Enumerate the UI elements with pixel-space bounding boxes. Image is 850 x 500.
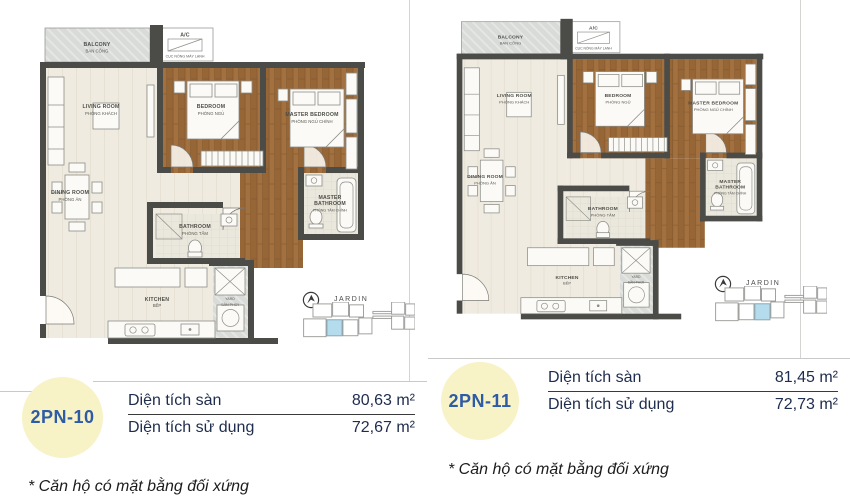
master-bathroom-label: MASTER <box>719 179 741 185</box>
spec-value: 81,45 m² <box>775 369 838 387</box>
master-bedroom-label: MASTER BEDROOM <box>688 101 738 107</box>
spec-row: Diện tích sử dụng 72,73 m² <box>548 393 838 417</box>
spec-table-2pn-10: Diện tích sàn 80,63 m² Diện tích sử dụng… <box>128 389 415 440</box>
svg-text:BẾP: BẾP <box>563 280 571 285</box>
svg-text:PHÒNG NGỦ CHÍNH: PHÒNG NGỦ CHÍNH <box>291 119 332 124</box>
keyplan-2pn-11: JARDIN <box>708 272 833 334</box>
corridor-floor <box>645 158 704 247</box>
svg-text:PHÒNG TẮM: PHÒNG TẮM <box>182 231 208 236</box>
keyplan-2pn-10: JARDIN <box>296 288 421 350</box>
svg-text:CỤC NÓNG MÁY LẠNH: CỤC NÓNG MÁY LẠNH <box>575 45 612 50</box>
svg-text:PHÒNG ĂN: PHÒNG ĂN <box>59 197 82 202</box>
bathroom-label: BATHROOM <box>588 206 618 212</box>
spec-row: Diện tích sàn 81,45 m² <box>548 366 838 390</box>
divider-horizontal-left <box>93 381 427 382</box>
spec-row: Diện tích sử dụng 72,67 m² <box>128 416 415 440</box>
master-bedroom-label: MASTER BEDROOM <box>285 112 338 118</box>
unit-highlight <box>327 320 342 336</box>
spec-label: Diện tích sử dụng <box>128 419 254 437</box>
dining-room-label: DINING ROOM <box>51 190 89 196</box>
svg-text:PHÒNG TẮM: PHÒNG TẮM <box>591 213 616 218</box>
bedroom-label: BEDROOM <box>197 104 226 110</box>
svg-text:PHÒNG ĂN: PHÒNG ĂN <box>474 181 496 186</box>
dining-room-label: DINING ROOM <box>467 174 503 180</box>
spec-label: Diện tích sử dụng <box>548 396 674 414</box>
svg-text:BATHROOM: BATHROOM <box>314 201 346 207</box>
spec-divider <box>128 414 415 415</box>
spec-label: Diện tích sàn <box>128 392 221 410</box>
spec-value: 72,73 m² <box>775 396 838 414</box>
bathroom-label: BATHROOM <box>179 224 211 230</box>
svg-text:PHÒNG NGỦ CHÍNH: PHÒNG NGỦ CHÍNH <box>694 107 733 112</box>
spec-value: 80,63 m² <box>352 392 415 410</box>
spec-divider <box>548 391 838 392</box>
unit-code: 2PN-11 <box>448 391 511 412</box>
footnote-2pn-10: * Căn hộ có mặt bằng đối xứng <box>28 478 249 496</box>
svg-text:PHÒNG TẮM CHÍNH: PHÒNG TẮM CHÍNH <box>714 191 747 196</box>
svg-text:PHÒNG NGỦ: PHÒNG NGỦ <box>606 100 631 105</box>
svg-text:BAN CÔNG: BAN CÔNG <box>86 49 110 54</box>
yard-label: YARD <box>631 275 641 279</box>
spec-row: Diện tích sàn 80,63 m² <box>128 389 415 413</box>
bedroom-label: BEDROOM <box>605 93 632 99</box>
divider-horizontal-right <box>428 358 850 359</box>
building-keyplan <box>710 286 827 331</box>
svg-text:PHÒNG TẮM CHÍNH: PHÒNG TẮM CHÍNH <box>313 208 347 213</box>
building-keyplan <box>298 302 415 347</box>
svg-text:SÂN PHƠI: SÂN PHƠI <box>221 303 238 307</box>
unit-badge-2pn-10: 2PN-10 <box>22 377 103 458</box>
footnote-2pn-11: * Căn hộ có mặt bằng đối xứng <box>448 461 669 479</box>
brochure-page: BALCONY BAN CÔNG A/C CỤC NÓNG MÁY LẠNH L… <box>0 0 850 500</box>
living-room-label: LIVING ROOM <box>82 104 119 110</box>
unit-highlight <box>755 304 770 320</box>
svg-text:PHÒNG NGỦ: PHÒNG NGỦ <box>198 111 225 116</box>
svg-text:BATHROOM: BATHROOM <box>715 184 745 190</box>
corridor-floor <box>240 173 303 268</box>
svg-text:PHÒNG KHÁCH: PHÒNG KHÁCH <box>499 100 529 105</box>
svg-text:SÂN PHƠI: SÂN PHƠI <box>628 280 644 285</box>
living-room-label: LIVING ROOM <box>497 93 532 99</box>
ac-label: A/C <box>180 33 190 39</box>
spec-table-2pn-11: Diện tích sàn 81,45 m² Diện tích sử dụng… <box>548 366 838 417</box>
svg-text:BAN CÔNG: BAN CÔNG <box>500 41 522 46</box>
balcony-label: BALCONY <box>83 42 110 48</box>
spec-value: 72,67 m² <box>352 419 415 437</box>
yard-label: YARD <box>225 297 235 301</box>
balcony-label: BALCONY <box>498 35 524 41</box>
svg-text:CỤC NÓNG MÁY LẠNH: CỤC NÓNG MÁY LẠNH <box>166 54 205 59</box>
spec-label: Diện tích sàn <box>548 369 641 387</box>
ac-label: A/C <box>589 26 598 32</box>
unit-badge-2pn-11: 2PN-11 <box>441 362 519 440</box>
svg-text:PHÒNG KHÁCH: PHÒNG KHÁCH <box>85 111 117 116</box>
svg-text:BẾP: BẾP <box>153 303 162 308</box>
unit-code: 2PN-10 <box>30 407 94 428</box>
